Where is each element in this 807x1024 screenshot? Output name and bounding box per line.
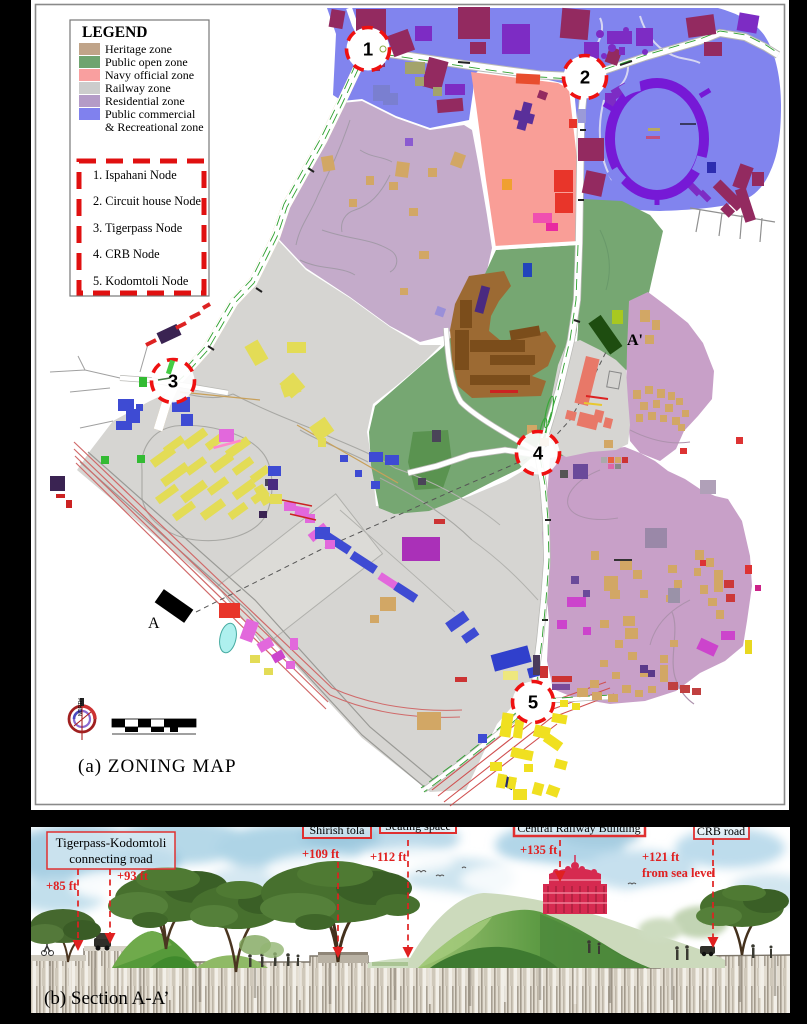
svg-text:4. CRB Node: 4. CRB Node <box>93 247 160 261</box>
svg-text:3. Tigerpass Node: 3. Tigerpass Node <box>93 221 183 235</box>
svg-text:LEGEND: LEGEND <box>82 24 147 41</box>
svg-text:A': A' <box>627 332 643 349</box>
svg-text:Railway zone: Railway zone <box>105 81 171 95</box>
svg-text:5. Kodomtoli Node: 5. Kodomtoli Node <box>93 274 189 288</box>
svg-text:from sea level: from sea level <box>642 866 716 880</box>
svg-text:A: A <box>148 615 160 632</box>
svg-text:1: 1 <box>363 39 373 60</box>
svg-text:2. Circuit house Node: 2. Circuit house Node <box>93 194 201 208</box>
svg-text:Tigerpass-Kodomtoli: Tigerpass-Kodomtoli <box>56 835 167 850</box>
svg-text:(a) ZONING MAP: (a) ZONING MAP <box>78 756 237 777</box>
svg-text:& Recreational zone: & Recreational zone <box>105 120 204 134</box>
svg-text:+121 ft: +121 ft <box>642 850 680 864</box>
svg-text:NORTH: NORTH <box>78 698 84 716</box>
svg-text:Heritage zone: Heritage zone <box>105 42 172 56</box>
svg-text:Residential zone: Residential zone <box>105 94 185 108</box>
svg-text:connecting road: connecting road <box>69 851 153 866</box>
svg-text:2: 2 <box>580 67 590 88</box>
svg-text:5: 5 <box>528 692 538 713</box>
svg-text:Navy official zone: Navy official zone <box>105 68 194 82</box>
svg-text:1. Ispahani Node: 1. Ispahani Node <box>93 168 177 182</box>
svg-text:+112 ft: +112 ft <box>370 850 407 864</box>
svg-text:(b) Section A-A’: (b) Section A-A’ <box>44 988 170 1009</box>
svg-text:+93 ft: +93 ft <box>117 869 149 883</box>
svg-text:4: 4 <box>533 443 544 464</box>
svg-text:Public commercial: Public commercial <box>105 107 196 121</box>
svg-text:+135 ft: +135 ft <box>520 843 558 857</box>
svg-text:+85 ft: +85 ft <box>46 879 78 893</box>
svg-text:+109 ft: +109 ft <box>302 847 340 861</box>
svg-text:Public open zone: Public open zone <box>105 55 188 69</box>
